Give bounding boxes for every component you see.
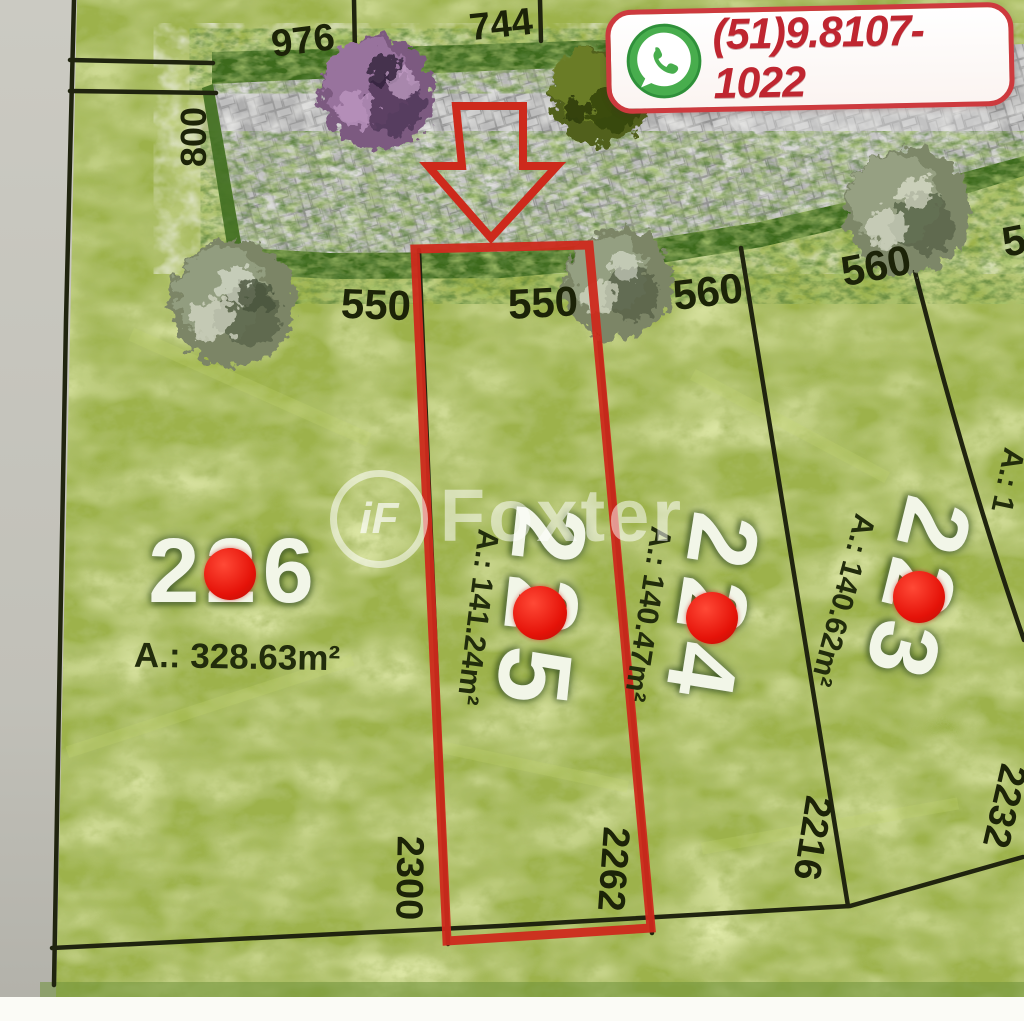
lot-226-marker-dot (204, 548, 256, 600)
frontage-lot225: 550 (507, 280, 579, 326)
lot-224-marker-dot (686, 592, 738, 644)
frontage-lot226: 550 (340, 283, 412, 327)
bottom-margin (0, 997, 1024, 1021)
dim-top-lot-b: 744 (467, 3, 534, 47)
phone-number: (51)9.8107-1022 (712, 5, 1010, 109)
whatsapp-icon (624, 21, 704, 101)
depth-lot225: 2262 (591, 826, 635, 913)
lot-225-marker-dot (513, 586, 567, 640)
lot-plat-map: 800 976 744 5 A.: 1 550 550 560 560 2300… (0, 0, 1024, 1021)
lot-223-marker-dot (893, 571, 945, 623)
frontage-lot224: 560 (671, 267, 746, 317)
depth-lot226: 2300 (389, 835, 428, 920)
watermark-logo: iF (330, 470, 428, 568)
watermark-brand: Foxter (440, 479, 684, 553)
dim-top-lot-a: 976 (269, 18, 337, 63)
lot-226-area: A.: 328.63m² (134, 638, 341, 677)
gray-bush-left (170, 240, 296, 366)
watermark-logo-text: iF (359, 494, 398, 544)
purple-bush (321, 36, 435, 150)
whatsapp-contact-badge[interactable]: (51)9.8107-1022 (605, 2, 1015, 115)
dim-left-lot-width: 800 (176, 107, 212, 167)
